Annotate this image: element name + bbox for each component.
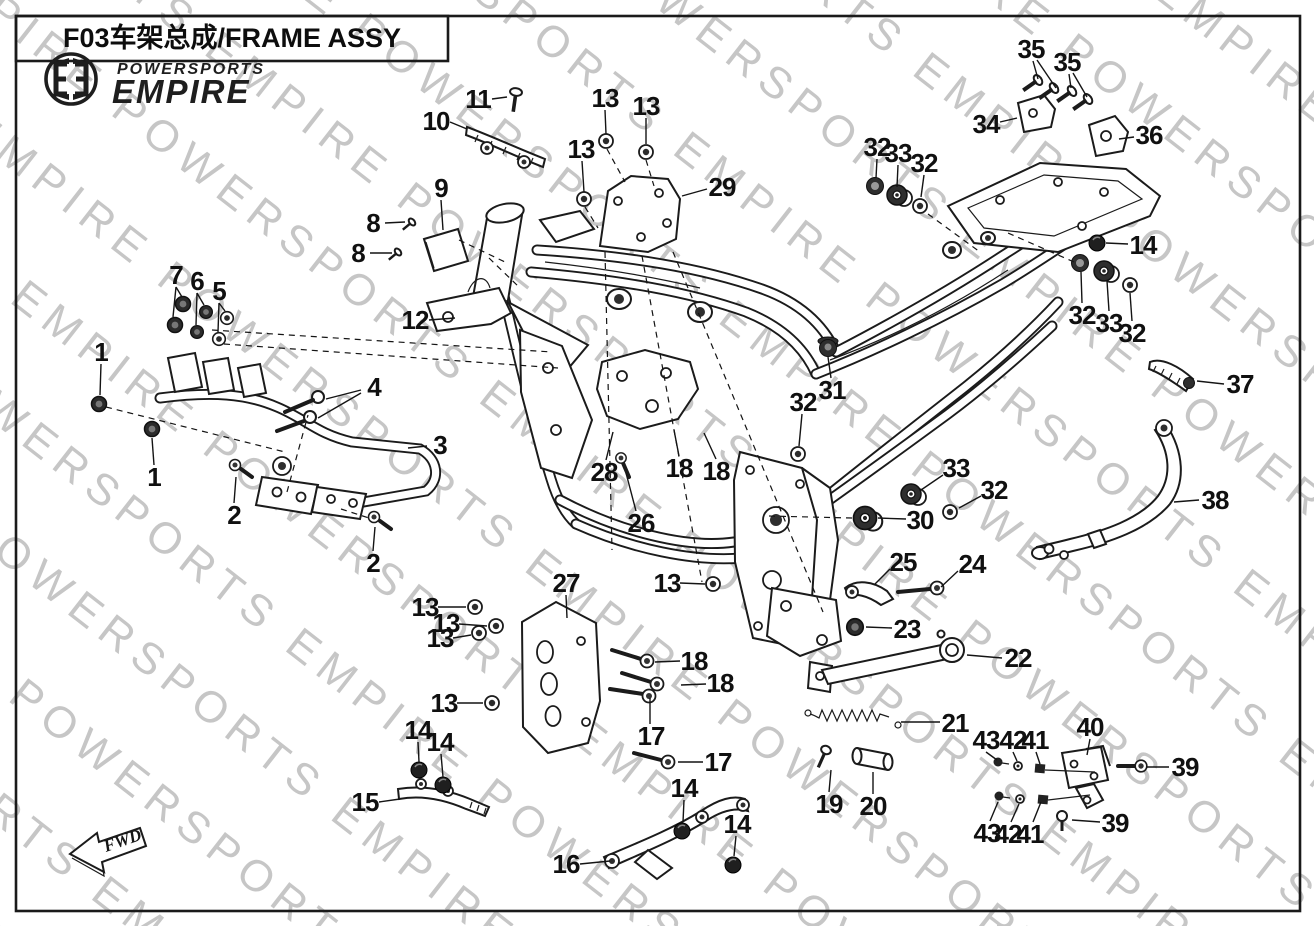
leader-line	[605, 110, 606, 134]
part-label-1: 1	[94, 337, 108, 367]
part-label-21: 21	[942, 708, 969, 738]
part-label-14: 14	[427, 727, 455, 757]
part-label-39: 39	[1172, 752, 1199, 782]
part-label-27: 27	[553, 568, 580, 598]
brand-empire-text: EMPIRE	[112, 73, 251, 110]
part-label-19: 19	[816, 789, 843, 819]
part-label-39: 39	[1102, 808, 1129, 838]
page-title: F03车架总成/FRAME ASSY	[63, 22, 401, 53]
leader-line	[385, 222, 405, 223]
part-label-9: 9	[434, 173, 448, 203]
part-label-17: 17	[705, 747, 732, 777]
part-label-6: 6	[190, 266, 204, 296]
part-label-13: 13	[431, 688, 458, 718]
alignment-dashed-line	[607, 149, 625, 182]
leader-line	[1107, 281, 1109, 311]
part-label-13: 13	[633, 91, 660, 121]
leader-line	[897, 165, 898, 187]
part-label-4: 4	[367, 372, 382, 402]
part-label-30: 30	[907, 505, 934, 535]
frame-assembly-diagram: POWERSPORTS EMPIRE POWERSPORTS EMPIRE PO…	[0, 0, 1314, 926]
part-label-2: 2	[366, 548, 380, 578]
part-label-17: 17	[638, 721, 665, 751]
leader-line	[379, 799, 400, 802]
leader-line	[799, 414, 802, 446]
part-label-20: 20	[860, 791, 887, 821]
part-label-34: 34	[973, 109, 1001, 139]
part-label-41: 41	[1017, 819, 1044, 849]
part-label-10: 10	[423, 106, 450, 136]
part-label-38: 38	[1202, 485, 1229, 515]
leader-line	[1130, 293, 1132, 321]
part-label-35: 35	[1054, 47, 1081, 77]
leader-line	[655, 661, 680, 662]
part-label-15: 15	[352, 787, 379, 817]
part-label-33: 33	[885, 138, 912, 168]
part-label-32: 32	[1069, 300, 1096, 330]
leader-line	[680, 583, 705, 584]
part-label-40: 40	[1077, 712, 1104, 742]
part-label-23: 23	[894, 614, 921, 644]
part-label-2: 2	[227, 500, 241, 530]
part-label-29: 29	[709, 172, 736, 202]
part-label-25: 25	[890, 547, 917, 577]
leader-line	[218, 303, 219, 332]
part-label-18: 18	[703, 456, 730, 486]
part-label-22: 22	[1005, 643, 1032, 673]
part-label-13: 13	[568, 134, 595, 164]
part-label-33: 33	[943, 453, 970, 483]
leader-line	[566, 595, 567, 618]
leader-line	[1106, 243, 1128, 244]
part-label-37: 37	[1227, 369, 1254, 399]
leader-line	[683, 800, 684, 822]
leader-line	[682, 189, 707, 196]
part-label-28: 28	[591, 457, 618, 487]
part-label-5: 5	[212, 276, 226, 306]
part-label-14: 14	[671, 773, 699, 803]
part-label-13: 13	[427, 623, 454, 653]
part-label-14: 14	[1130, 230, 1158, 260]
part-label-18: 18	[666, 453, 693, 483]
part-label-12: 12	[402, 305, 429, 335]
leader-line	[100, 364, 101, 395]
part-label-43: 43	[973, 725, 1000, 755]
leader-line	[1081, 272, 1082, 303]
part-label-32: 32	[790, 387, 817, 417]
part-label-36: 36	[1136, 120, 1163, 150]
part-label-18: 18	[707, 668, 734, 698]
leader-line	[878, 518, 906, 519]
part-label-32: 32	[911, 148, 938, 178]
part-label-3: 3	[433, 430, 447, 460]
part-label-7: 7	[169, 260, 183, 290]
part-label-1: 1	[147, 462, 161, 492]
leader-line	[196, 293, 197, 325]
leader-line	[418, 742, 419, 762]
leader-line	[866, 627, 892, 628]
part-label-31: 31	[819, 375, 846, 405]
leader-line	[681, 684, 706, 685]
part-label-13: 13	[592, 83, 619, 113]
part-label-35: 35	[1018, 34, 1045, 64]
leader-line	[941, 571, 958, 587]
part-label-8: 8	[351, 238, 365, 268]
leader-line	[152, 438, 154, 465]
part-label-32: 32	[981, 475, 1008, 505]
part-label-14: 14	[724, 809, 752, 839]
part-label-13: 13	[654, 568, 681, 598]
part-label-32: 32	[1119, 318, 1146, 348]
part-label-16: 16	[553, 849, 580, 879]
part-label-11: 11	[465, 84, 491, 114]
part-label-8: 8	[366, 208, 380, 238]
part-label-41: 41	[1022, 725, 1049, 755]
part-label-24: 24	[959, 549, 987, 579]
part-label-18: 18	[681, 646, 708, 676]
part-label-26: 26	[628, 508, 655, 538]
